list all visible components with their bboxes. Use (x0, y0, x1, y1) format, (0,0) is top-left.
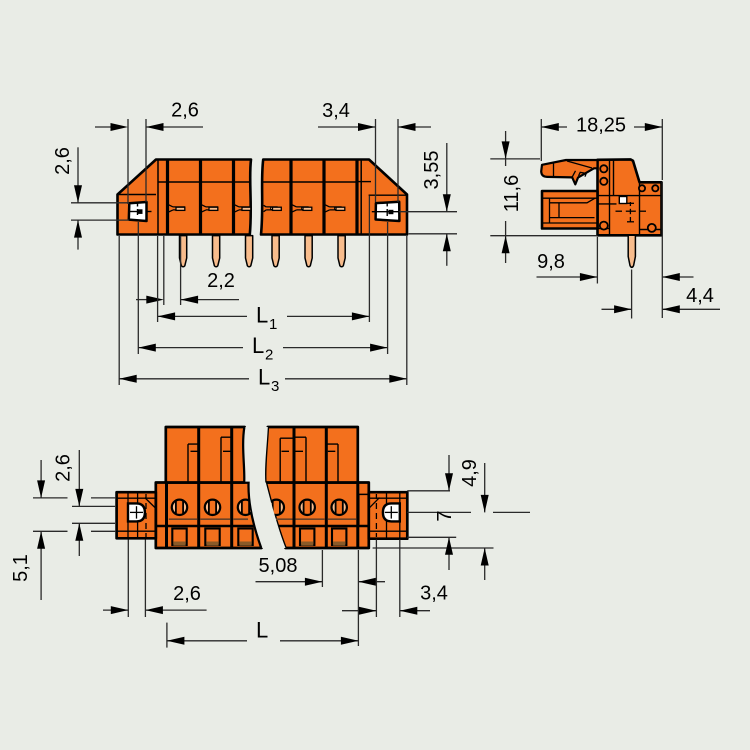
svg-text:3,4: 3,4 (322, 100, 350, 122)
svg-text:2: 2 (265, 347, 273, 364)
svg-text:2,6: 2,6 (173, 583, 201, 605)
svg-text:L: L (258, 365, 270, 390)
svg-text:5,08: 5,08 (259, 555, 298, 577)
svg-text:4,4: 4,4 (686, 285, 714, 307)
svg-text:2,6: 2,6 (171, 100, 199, 122)
svg-text:18,25: 18,25 (576, 115, 626, 137)
svg-text:2,6: 2,6 (52, 147, 74, 175)
svg-text:3: 3 (271, 378, 279, 395)
svg-text:11,6: 11,6 (501, 175, 523, 212)
svg-text:1: 1 (269, 316, 277, 333)
svg-text:2,2: 2,2 (207, 270, 235, 292)
svg-text:L: L (256, 303, 268, 328)
svg-text:9,8: 9,8 (537, 251, 565, 273)
svg-text:4,9: 4,9 (459, 459, 481, 487)
svg-text:3,4: 3,4 (420, 583, 448, 605)
svg-text:7: 7 (434, 510, 456, 521)
svg-text:2,6: 2,6 (53, 454, 75, 482)
svg-text:5,1: 5,1 (10, 554, 32, 582)
svg-text:L: L (256, 618, 268, 643)
svg-text:L: L (252, 333, 264, 358)
svg-text:3,55: 3,55 (421, 151, 443, 190)
